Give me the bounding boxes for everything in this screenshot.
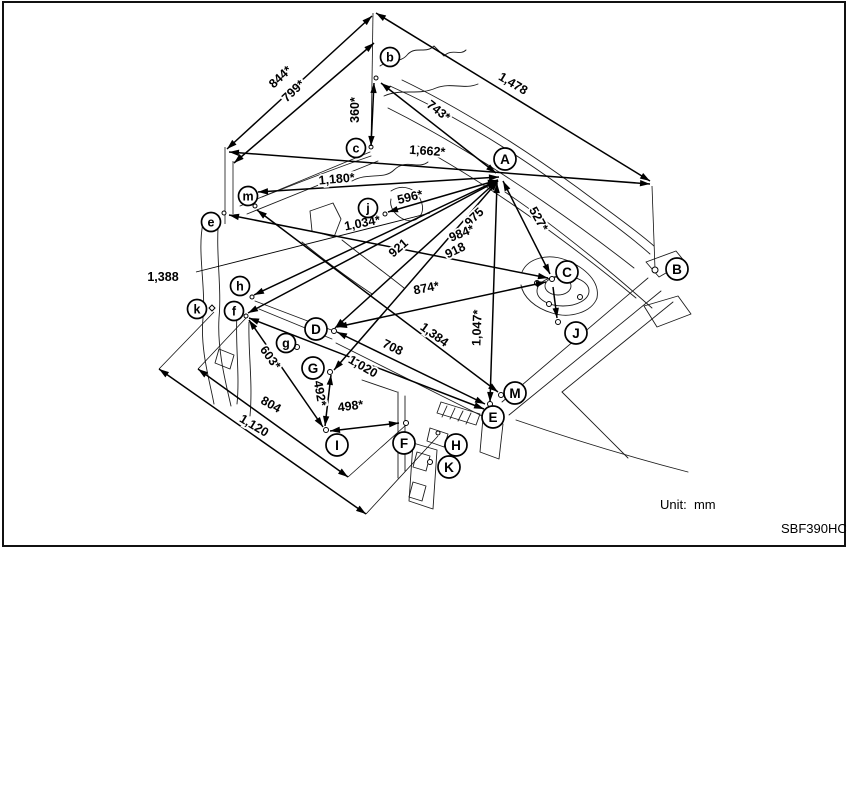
dimension-arrowhead bbox=[487, 392, 493, 402]
dimension-diagram-figure: 844*799*360*743*1,4781,662*1,180*596*1,0… bbox=[0, 0, 848, 560]
dimension-label: 921 bbox=[386, 236, 411, 260]
point-letter-A: A bbox=[500, 152, 510, 167]
point-marker bbox=[578, 295, 583, 300]
body-artwork-path bbox=[509, 291, 661, 415]
point-marker bbox=[244, 314, 248, 318]
body-artwork-path bbox=[388, 108, 634, 268]
point-letter-K: K bbox=[444, 460, 454, 475]
point-letter-g: g bbox=[282, 337, 290, 351]
dimension-arrowhead bbox=[543, 264, 550, 274]
dimension-arrowhead bbox=[327, 375, 333, 385]
point-letter-I: I bbox=[335, 438, 339, 453]
point-letter-c: c bbox=[353, 142, 360, 156]
dimension-arrowhead bbox=[338, 469, 348, 477]
dimension-line bbox=[330, 423, 399, 431]
dimension-arrowhead bbox=[553, 308, 559, 318]
dimension-label: 1,384 bbox=[418, 320, 452, 350]
dimension-arrowhead bbox=[315, 417, 323, 427]
dimension-arrowhead bbox=[159, 369, 169, 377]
body-artwork-path bbox=[516, 420, 688, 472]
figure-border bbox=[3, 2, 845, 546]
point-letter-k: k bbox=[194, 303, 201, 317]
body-artwork-path bbox=[249, 322, 251, 416]
dimension-arrowhead bbox=[389, 421, 399, 427]
dimension-label: 596* bbox=[396, 187, 424, 207]
point-letter-e: e bbox=[208, 216, 215, 230]
point-marker bbox=[332, 329, 337, 334]
point-letter-m: m bbox=[242, 190, 253, 204]
point-letter-J: J bbox=[572, 326, 580, 341]
dimension-line bbox=[337, 282, 546, 327]
body-artwork-path bbox=[362, 380, 397, 392]
point-marker bbox=[652, 267, 658, 273]
dimension-arrowhead bbox=[640, 173, 650, 181]
body-dimension-diagram-svg: 844*799*360*743*1,4781,662*1,180*596*1,0… bbox=[0, 0, 848, 560]
point-letter-h: h bbox=[236, 280, 244, 294]
point-letter-E: E bbox=[488, 410, 497, 425]
point-letter-M: M bbox=[509, 386, 520, 401]
point-marker bbox=[436, 431, 440, 435]
point-marker bbox=[209, 305, 215, 311]
body-artwork-path bbox=[521, 285, 597, 315]
dimension-label: 1,388 bbox=[147, 270, 178, 284]
body-artwork-path bbox=[409, 482, 426, 501]
dimension-arrowhead bbox=[248, 305, 258, 313]
figure-code: SBF390HC bbox=[781, 521, 847, 536]
extension-line bbox=[652, 186, 655, 269]
point-marker bbox=[404, 421, 409, 426]
point-marker bbox=[328, 370, 333, 375]
point-marker bbox=[499, 393, 504, 398]
dimension-label: 1,047* bbox=[469, 309, 484, 346]
point-letter-D: D bbox=[311, 322, 321, 337]
dimension-label: 918 bbox=[443, 240, 468, 262]
point-marker bbox=[428, 460, 433, 465]
dimension-label: 1,662* bbox=[409, 143, 446, 159]
dimension-line bbox=[381, 83, 496, 173]
dimension-label: 492* bbox=[311, 379, 329, 407]
point-letter-H: H bbox=[451, 438, 461, 453]
dimension-arrowhead bbox=[370, 83, 376, 93]
point-marker bbox=[547, 302, 552, 307]
body-artwork-path bbox=[562, 392, 628, 458]
body-artwork-path bbox=[505, 192, 652, 308]
dimension-arrowhead bbox=[376, 13, 386, 21]
point-letter-B: B bbox=[672, 262, 682, 277]
point-marker bbox=[550, 277, 555, 282]
dimension-arrowhead bbox=[368, 136, 374, 146]
point-letter-F: F bbox=[400, 436, 408, 451]
dimension-label: 874* bbox=[412, 279, 440, 298]
point-letter-j: j bbox=[365, 202, 369, 216]
body-artwork-path bbox=[562, 302, 673, 392]
point-letter-G: G bbox=[308, 361, 319, 376]
body-artwork-path bbox=[409, 443, 437, 509]
dimension-arrowhead bbox=[323, 416, 329, 426]
point-marker bbox=[374, 76, 378, 80]
dimension-arrowhead bbox=[388, 206, 398, 212]
dimension-arrowhead bbox=[503, 181, 510, 191]
dimension-label: 498* bbox=[337, 397, 364, 414]
point-marker bbox=[222, 211, 226, 215]
dimension-arrowhead bbox=[356, 506, 366, 514]
dimension-arrowhead bbox=[337, 332, 347, 339]
dimension-arrowhead bbox=[198, 369, 208, 377]
dimension-label: 1,180* bbox=[318, 170, 355, 187]
body-artwork-path bbox=[644, 296, 691, 327]
point-marker bbox=[250, 295, 254, 299]
dimension-arrowhead bbox=[254, 288, 264, 295]
dimension-label: 1,478 bbox=[496, 70, 530, 98]
point-marker bbox=[383, 212, 387, 216]
dimension-arrowhead bbox=[536, 281, 546, 287]
point-marker bbox=[324, 428, 329, 433]
point-marker bbox=[556, 320, 561, 325]
dimension-arrowhead bbox=[330, 427, 340, 433]
point-letter-C: C bbox=[562, 265, 572, 280]
dimension-label: 360* bbox=[348, 97, 362, 123]
body-artwork-path bbox=[458, 411, 463, 421]
point-letter-b: b bbox=[386, 51, 394, 65]
dimension-label: 804 bbox=[258, 393, 283, 415]
body-artwork-path bbox=[215, 349, 234, 369]
unit-label: Unit: mm bbox=[660, 497, 716, 512]
